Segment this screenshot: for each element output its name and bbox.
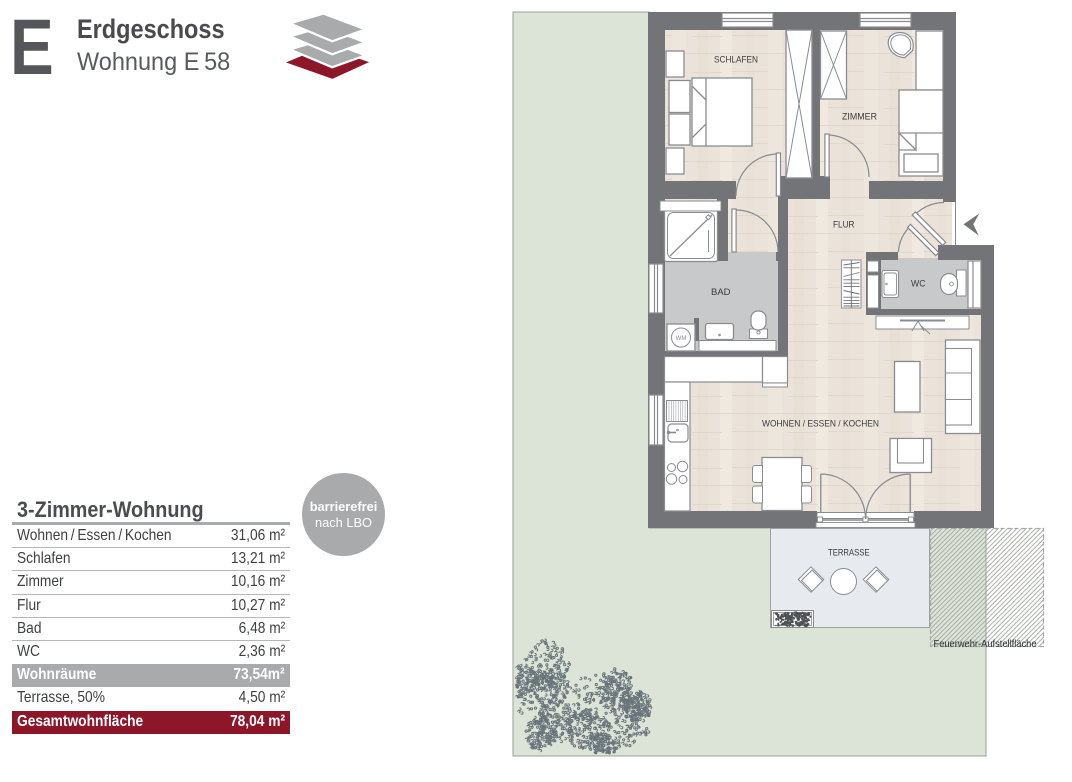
svg-text:Feuerwehr-Aufstellfläche: Feuerwehr-Aufstellfläche [934,638,1037,650]
svg-text:WM: WM [676,336,687,342]
svg-text:ZIMMER: ZIMMER [842,112,877,123]
svg-text:WC: WC [911,279,926,290]
svg-text:WOHNEN / ESSEN / KOCHEN: WOHNEN / ESSEN / KOCHEN [762,419,879,430]
svg-text:BAD: BAD [711,287,731,298]
svg-text:TERRASSE: TERRASSE [828,548,870,559]
svg-text:SCHLAFEN: SCHLAFEN [714,55,758,66]
svg-text:FLUR: FLUR [833,220,855,231]
